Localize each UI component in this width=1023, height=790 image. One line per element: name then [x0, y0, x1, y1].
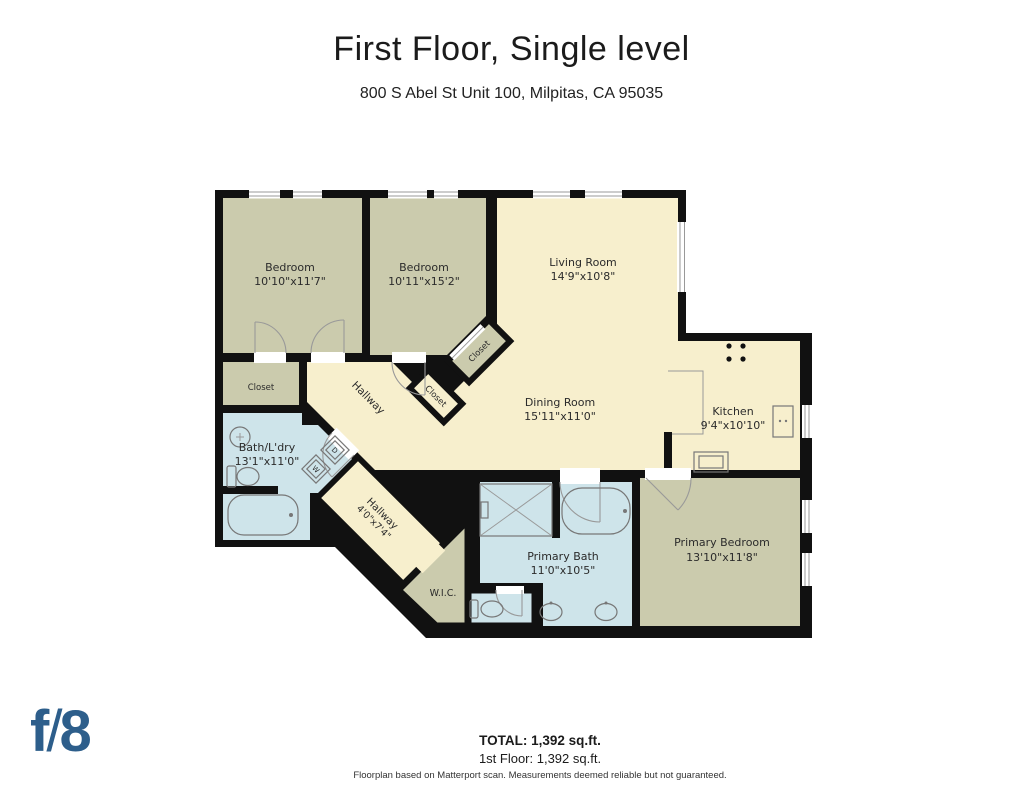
- svg-text:Living Room: Living Room: [549, 256, 617, 269]
- window: [249, 190, 280, 199]
- page-title: First Floor, Single level: [0, 30, 1023, 69]
- first-floor-area: 1st Floor: 1,392 sq.ft.: [57, 751, 1023, 766]
- window: [533, 190, 570, 199]
- svg-text:Kitchen: Kitchen: [712, 405, 753, 418]
- footer: TOTAL: 1,392 sq.ft. 1st Floor: 1,392 sq.…: [57, 733, 1023, 781]
- window: [585, 190, 622, 199]
- svg-text:10'11"x15'2": 10'11"x15'2": [388, 275, 460, 288]
- room-name: Bedroom: [265, 261, 315, 274]
- logo-slash: /: [46, 699, 59, 764]
- room-dining: Dining Room 15'11"x11'0": [524, 396, 596, 423]
- room-primary-bath: Primary Bath 11'0"x10'5": [527, 550, 599, 577]
- total-area: TOTAL: 1,392 sq.ft.: [57, 733, 1023, 748]
- floorplan-page: First Floor, Single level 800 S Abel St …: [0, 0, 1023, 790]
- svg-text:Bedroom: Bedroom: [399, 261, 449, 274]
- svg-text:Primary Bedroom: Primary Bedroom: [674, 536, 770, 549]
- svg-text:Primary Bath: Primary Bath: [527, 550, 599, 563]
- window: [802, 405, 812, 438]
- svg-text:W.I.C.: W.I.C.: [430, 588, 457, 599]
- svg-text:9'4"x10'10": 9'4"x10'10": [701, 419, 766, 432]
- address: 800 S Abel St Unit 100, Milpitas, CA 950…: [0, 85, 1023, 103]
- room-dims: 10'10"x11'7": [254, 275, 326, 288]
- svg-text:Bath/L'dry: Bath/L'dry: [239, 441, 296, 454]
- window: [388, 190, 427, 199]
- svg-text:Dining Room: Dining Room: [525, 396, 595, 409]
- svg-text:11'0"x10'5": 11'0"x10'5": [531, 564, 596, 577]
- room-living: Living Room 14'9"x10'8": [549, 256, 617, 283]
- svg-text:15'11"x11'0": 15'11"x11'0": [524, 410, 596, 423]
- window: [677, 222, 687, 292]
- disclaimer: Floorplan based on Matterport scan. Meas…: [57, 770, 1023, 781]
- svg-text:14'9"x10'8": 14'9"x10'8": [551, 270, 616, 283]
- closet-left-label: Closet: [248, 383, 275, 393]
- svg-text:13'1"x11'0": 13'1"x11'0": [235, 455, 300, 468]
- window: [802, 553, 812, 586]
- window: [434, 190, 458, 199]
- f8-logo: f/8: [30, 698, 89, 765]
- svg-text:13'10"x11'8": 13'10"x11'8": [686, 551, 758, 564]
- room-wic-label: W.I.C.: [430, 588, 457, 599]
- window: [293, 190, 322, 199]
- window: [802, 500, 812, 533]
- room-bath-laundry: Bath/L'dry 13'1"x11'0": [235, 441, 300, 468]
- floor-plan: Closet Closet: [0, 0, 1023, 790]
